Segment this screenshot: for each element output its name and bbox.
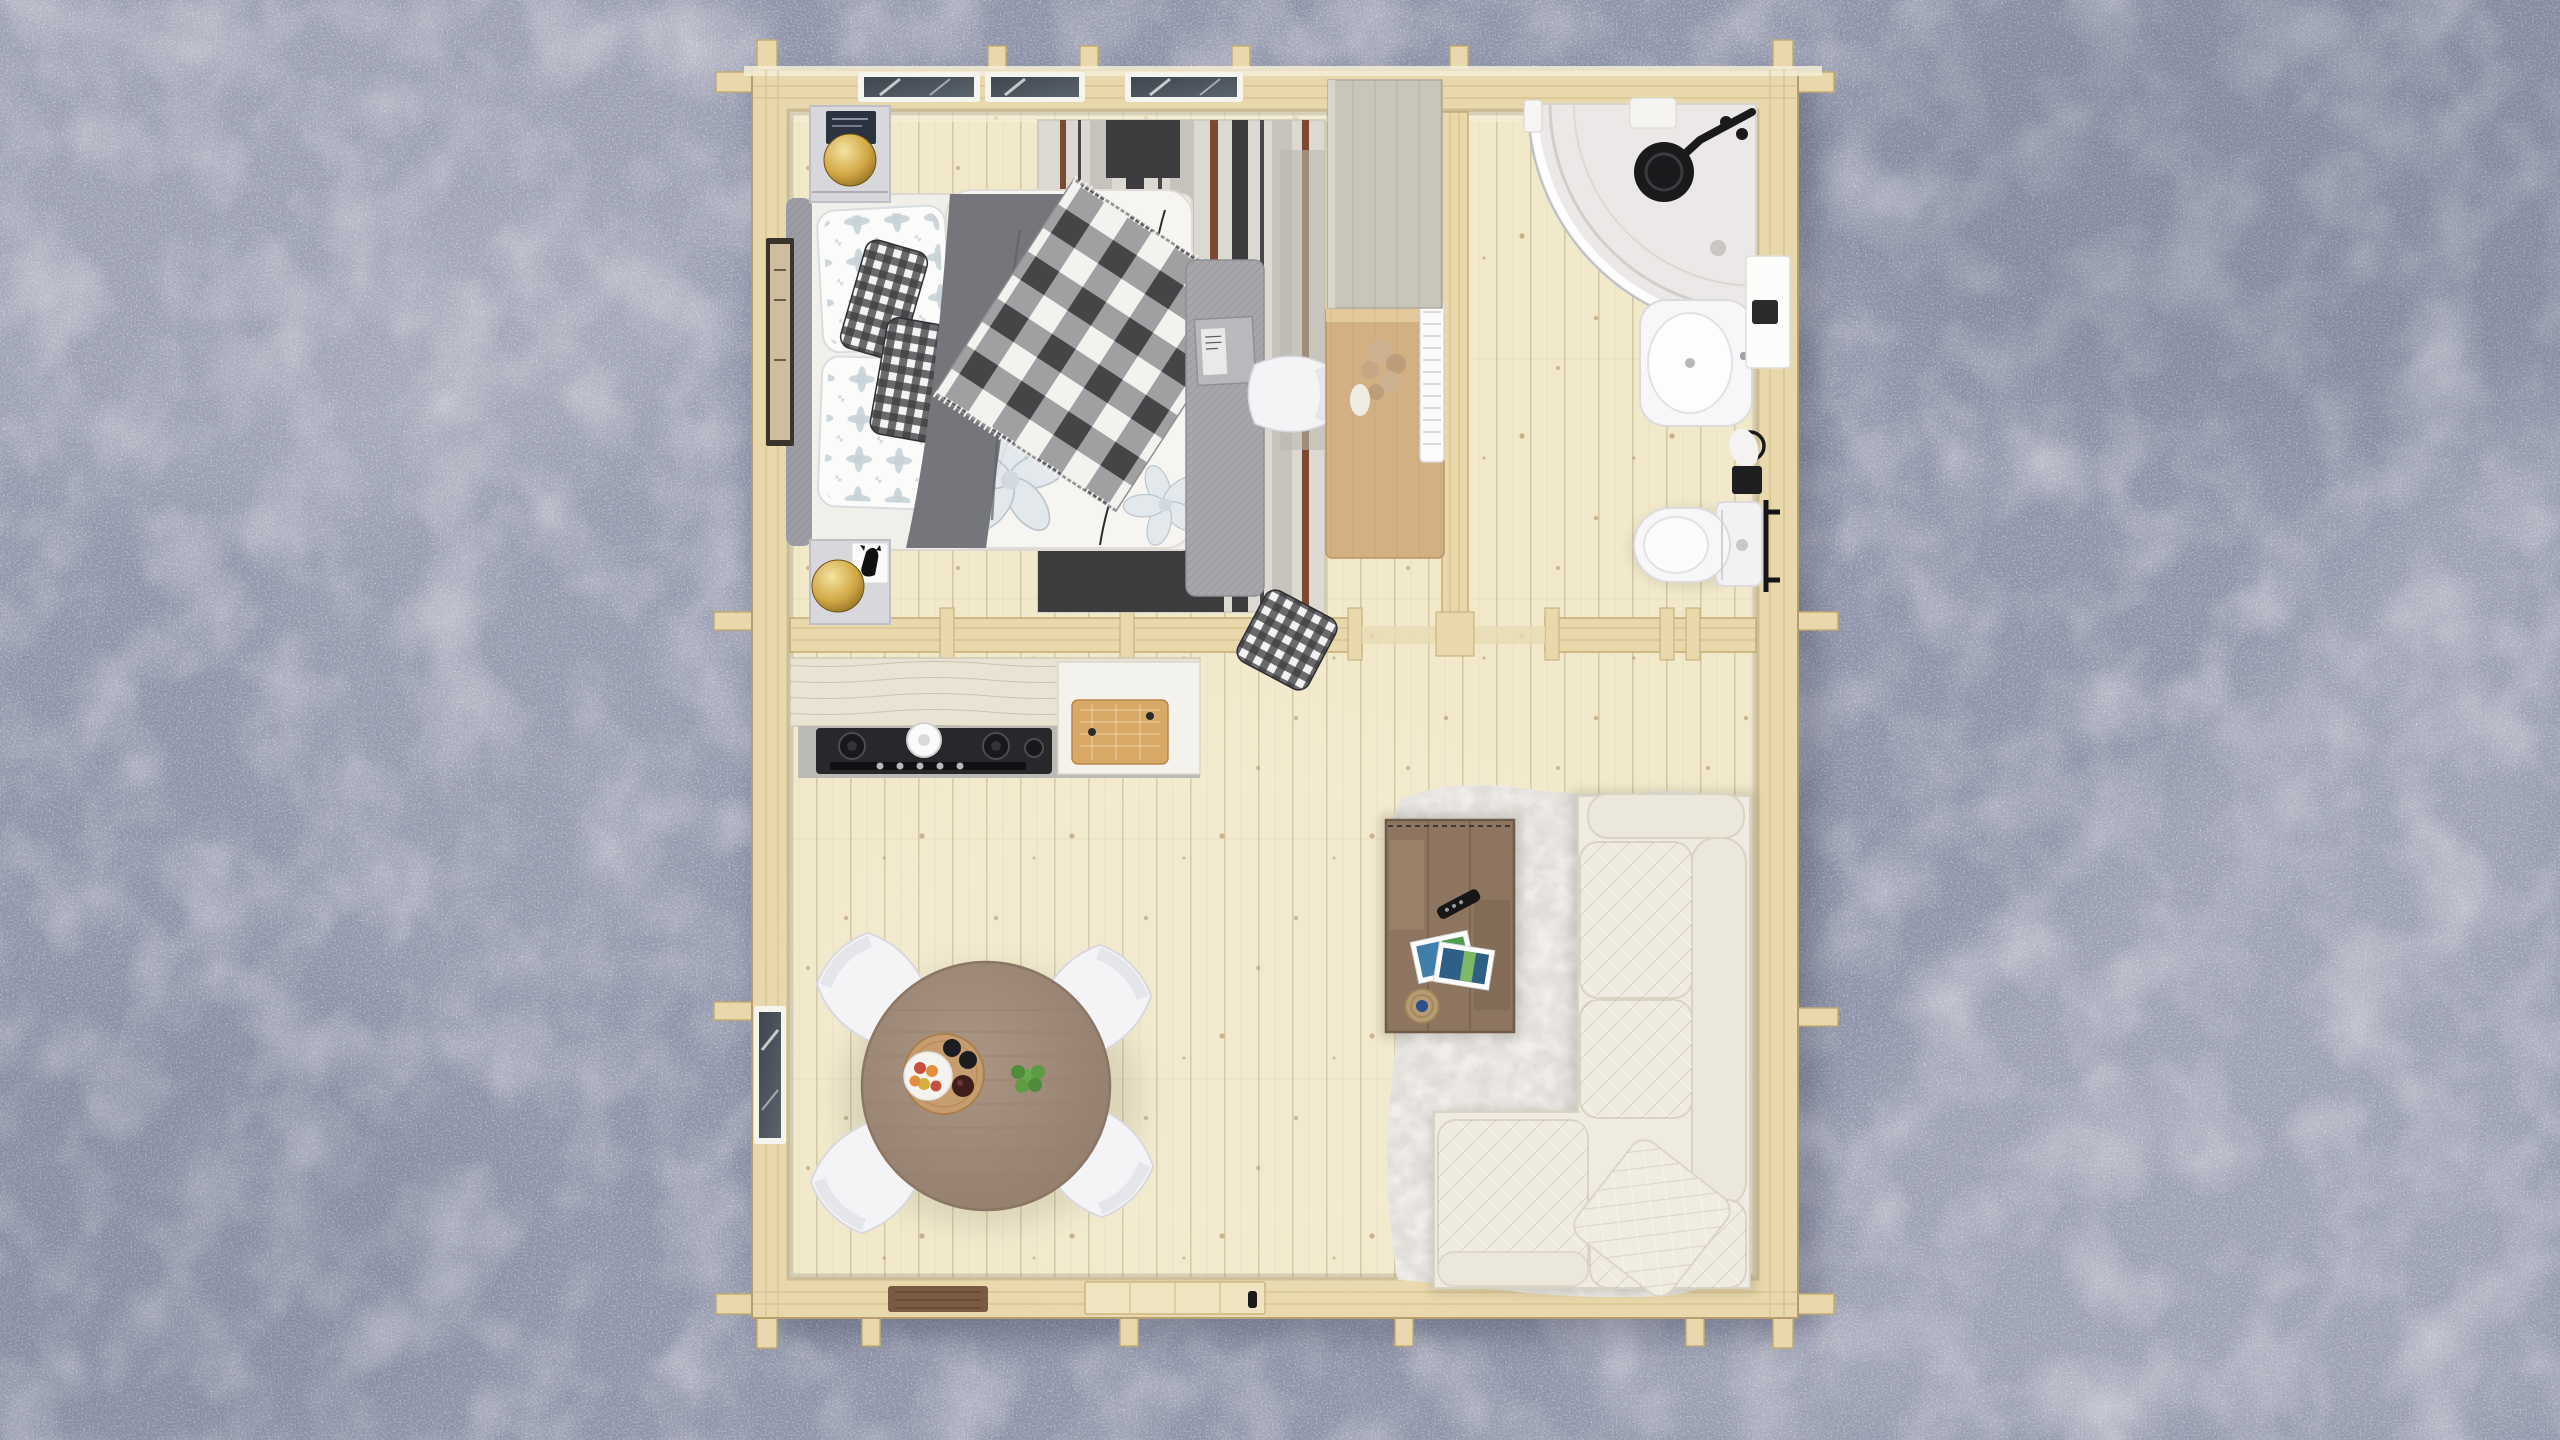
brass-lamp-2 [812, 560, 864, 612]
shower-door-frame-1 [1524, 100, 1542, 132]
coaster [1405, 989, 1439, 1023]
shower-caddy [1630, 98, 1676, 128]
pot [907, 723, 941, 757]
sink-drain [1685, 358, 1695, 368]
bathroom-door-threshold [1468, 626, 1545, 644]
door-handle [1248, 1291, 1257, 1308]
window-top-1 [858, 72, 980, 102]
brass-lamp-1 [824, 134, 876, 186]
bench-book [1194, 317, 1255, 386]
window-top-3 [1125, 72, 1243, 102]
sofa-chaise [1438, 1120, 1588, 1286]
bedroom-door-threshold [1362, 626, 1442, 644]
coffee-table [1380, 814, 1520, 1038]
bed [786, 179, 1255, 558]
dining-table [862, 962, 1110, 1210]
wall-box-1 [1752, 300, 1778, 324]
nightstand-2 [810, 540, 890, 624]
bed-bench [1186, 260, 1264, 596]
dining-area [798, 920, 1166, 1246]
wall-art [766, 238, 794, 446]
sofa-cushion-1 [1580, 842, 1692, 998]
nightstand-1 [810, 106, 890, 202]
toilet [1628, 500, 1780, 592]
sofa-headrest [1588, 794, 1744, 838]
vase [1350, 384, 1370, 416]
light-wash-left [260, 190, 780, 1030]
window-left [754, 1006, 786, 1144]
control-strip [830, 762, 1026, 770]
sofa-bolster [1692, 838, 1746, 1206]
wardrobe [1328, 80, 1442, 308]
screenshot-canvas [0, 0, 2560, 1440]
window-top-2 [985, 72, 1085, 102]
building [714, 40, 1838, 1348]
cutting-board [1072, 700, 1168, 764]
wall-box-2 [1732, 466, 1762, 494]
flush-button [1736, 539, 1748, 551]
radiator [1420, 300, 1444, 462]
cooktop [816, 723, 1052, 774]
doormat [888, 1286, 988, 1312]
kitchen [790, 658, 1200, 778]
living-area [1380, 775, 1756, 1305]
desk-chair [1248, 356, 1332, 431]
entrance-door [1085, 1282, 1265, 1314]
fruit-plate [904, 1052, 952, 1100]
sofa-cushion-2 [1580, 1000, 1692, 1118]
windows-top [858, 72, 1243, 102]
